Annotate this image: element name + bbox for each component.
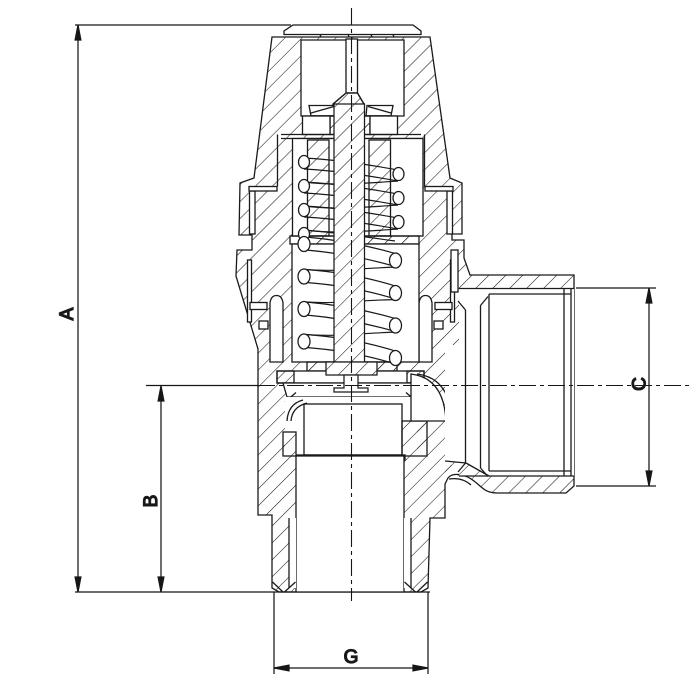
svg-text:G: G (344, 647, 359, 668)
svg-text:A: A (57, 307, 78, 320)
svg-text:B: B (141, 495, 162, 508)
svg-text:C: C (630, 377, 651, 391)
